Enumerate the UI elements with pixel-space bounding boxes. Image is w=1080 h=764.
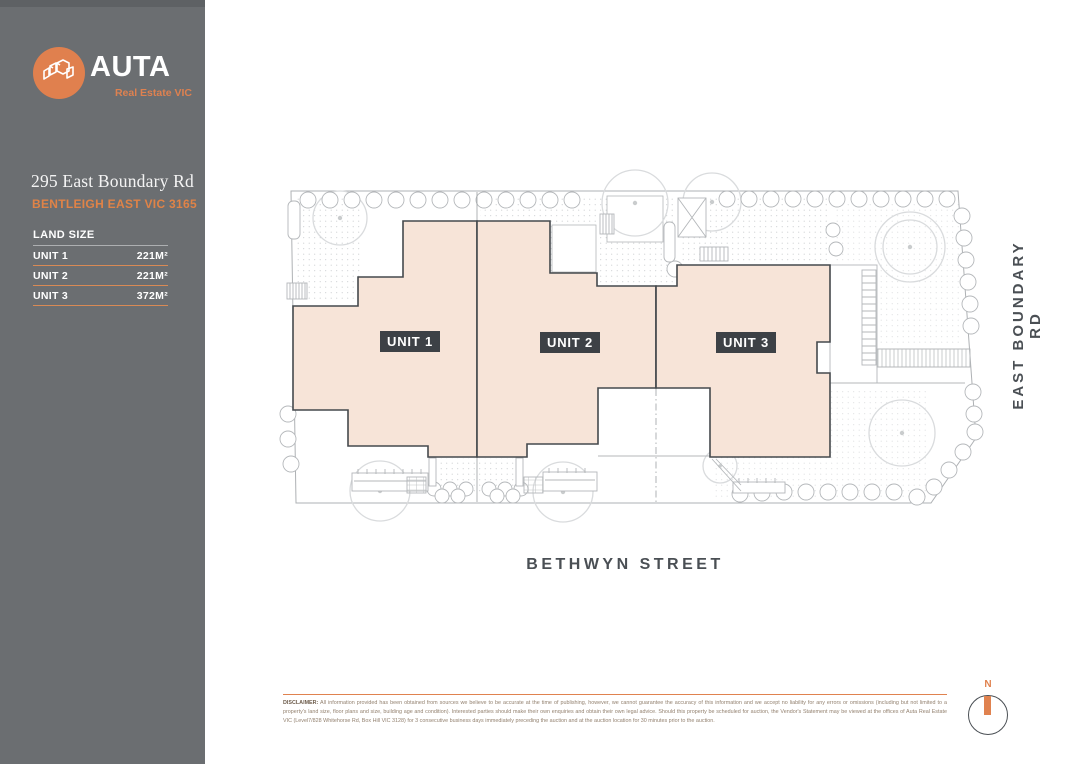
unit-3-tag: UNIT 3 — [716, 332, 776, 353]
disclaimer: DISCLAIMER: All information provided has… — [283, 699, 947, 726]
north-label: N — [980, 679, 996, 690]
footer-divider — [283, 694, 947, 695]
unit-area: 221M² — [137, 270, 168, 282]
auta-logo — [33, 47, 85, 99]
sidebar: AUTA Real Estate VIC 295 East Boundary R… — [0, 0, 205, 764]
land-size-header: LAND SIZE — [33, 229, 168, 246]
unit-1-tag: UNIT 1 — [380, 331, 440, 352]
unit-3-footprint — [656, 265, 830, 457]
unit-label: UNIT 1 — [33, 250, 68, 262]
land-size-row: UNIT 3 372M² — [33, 286, 168, 306]
unit-area: 221M² — [137, 250, 168, 262]
road-name-east-boundary: EAST BOUNDARY RD — [1010, 237, 1026, 413]
brand-tagline: Real Estate VIC — [90, 87, 192, 99]
street-name-bethwyn: BETHWYN STREET — [430, 556, 820, 574]
land-size-row: UNIT 2 221M² — [33, 266, 168, 286]
auta-logo-icon — [41, 56, 77, 91]
disclaimer-text: All information provided has been obtain… — [283, 700, 947, 724]
property-address: 295 East Boundary Rd — [31, 171, 194, 192]
brand-name: AUTA — [90, 53, 170, 82]
unit-label: UNIT 3 — [33, 290, 68, 302]
sidebar-top-strip — [0, 0, 205, 7]
unit-area: 372M² — [137, 290, 168, 302]
disclaimer-label: DISCLAIMER: — [283, 700, 318, 706]
unit-2-tag: UNIT 2 — [540, 332, 600, 353]
unit-label: UNIT 2 — [33, 270, 68, 282]
land-size-row: UNIT 1 221M² — [33, 246, 168, 266]
land-size-table: LAND SIZE UNIT 1 221M² UNIT 2 221M² UNIT… — [33, 229, 168, 306]
property-suburb: BENTLEIGH EAST VIC 3165 — [32, 197, 197, 211]
north-arrow-bar — [984, 696, 991, 715]
